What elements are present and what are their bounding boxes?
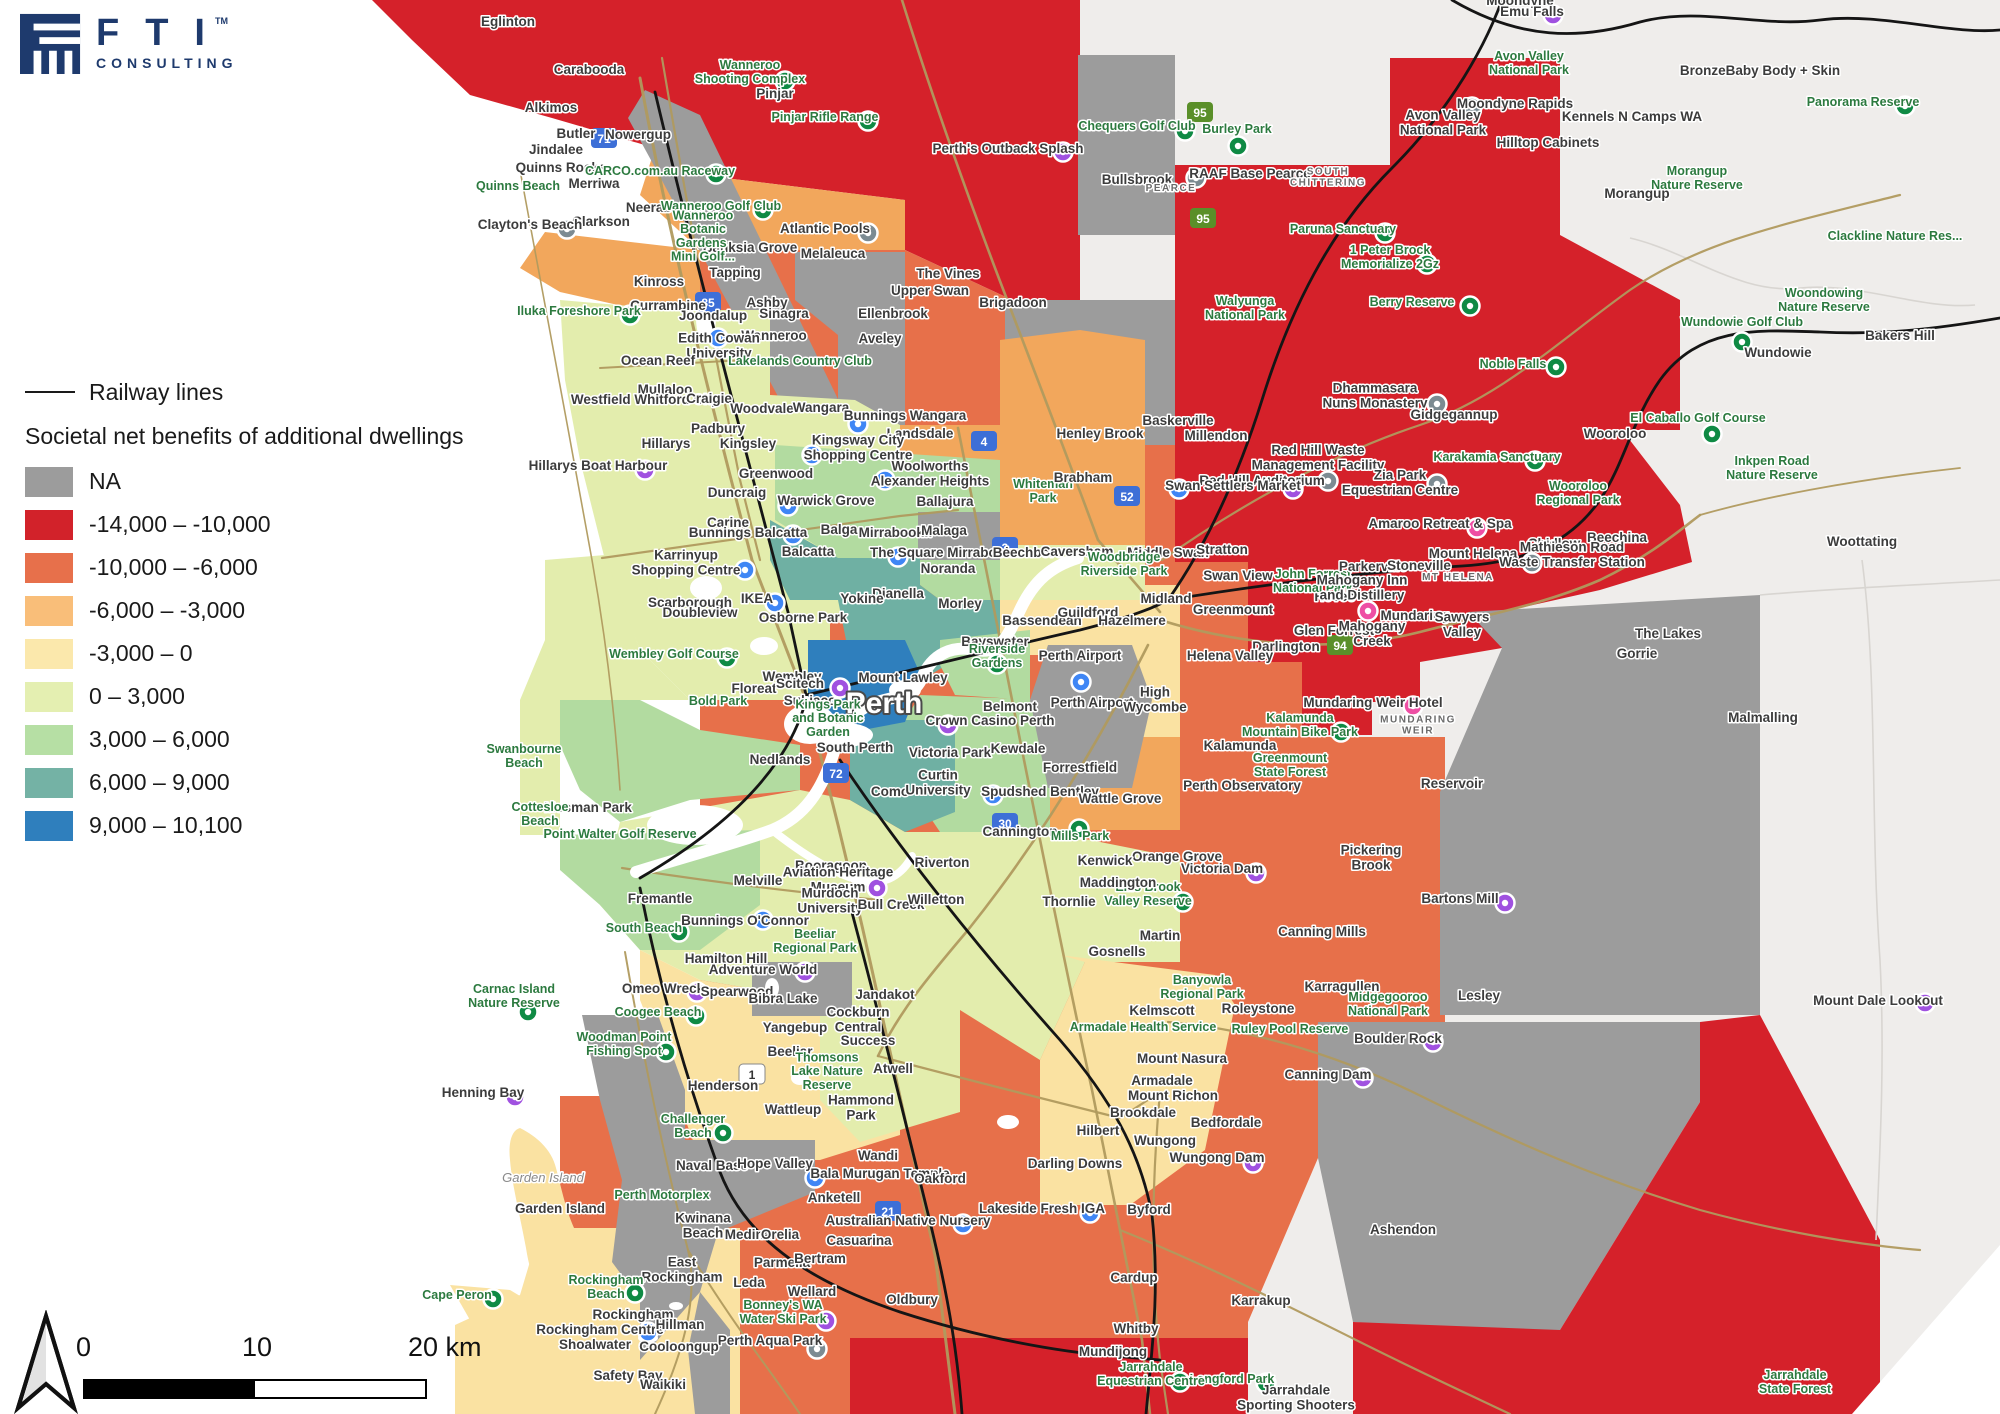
poi-marker-glyph bbox=[720, 1130, 726, 1136]
map-label: Noranda bbox=[921, 561, 976, 576]
map-label: PEARCE bbox=[1146, 183, 1197, 194]
map-label: Scitech bbox=[776, 676, 824, 691]
map-label: Bunnings Balcatta bbox=[689, 525, 808, 540]
map-label: Aveley bbox=[858, 331, 902, 346]
map-label: Amaroo Retreat & Spa bbox=[1368, 516, 1512, 531]
map-label: Hazelmere bbox=[1098, 613, 1166, 628]
map-label: Henderson bbox=[688, 1078, 759, 1093]
map-label: RiversideGardens bbox=[969, 642, 1025, 670]
map-label: Canning Mills bbox=[1278, 924, 1366, 939]
map-label: Wundowie Golf Club bbox=[1681, 315, 1803, 329]
map-label: Carabooda bbox=[554, 62, 625, 77]
map-label: Mahogany Innand Distillery bbox=[1317, 573, 1408, 603]
map-label: Hope Valley bbox=[737, 1156, 813, 1171]
map-label: GreenmountState Forest bbox=[1253, 751, 1328, 779]
map-label: Butler bbox=[556, 126, 596, 141]
region-na-avon-valley bbox=[1078, 55, 1175, 235]
road-shield-number: 94 bbox=[1333, 639, 1347, 653]
map-label: Kelmscott bbox=[1129, 1003, 1195, 1018]
map-label: Greenmount bbox=[1193, 602, 1274, 617]
poi-marker-glyph bbox=[1325, 478, 1331, 484]
poi-marker-glyph bbox=[1078, 679, 1084, 685]
map-label: WalyungaNational Park bbox=[1205, 294, 1285, 322]
map-label: Wangara bbox=[793, 400, 850, 415]
map-label: Cannington bbox=[983, 824, 1058, 839]
map-label: Joondalup bbox=[679, 308, 747, 323]
map-label: Perth Observatory bbox=[1183, 778, 1301, 793]
map-label: Jandakot bbox=[855, 987, 915, 1002]
map-label: Fremantle bbox=[628, 891, 693, 906]
logo-brand-text: FTI bbox=[96, 18, 231, 48]
map-label: Boulder Rock bbox=[1354, 1031, 1442, 1046]
map-label: Crown Casino Perth bbox=[925, 713, 1054, 728]
map-label: Pinjar bbox=[756, 86, 794, 101]
map-label: Melaleuca bbox=[801, 246, 866, 261]
legend-item: -10,000 – -6,000 bbox=[25, 546, 464, 589]
map-label: Warwick Grove bbox=[777, 493, 875, 508]
map-label: MurdochUniversity bbox=[797, 886, 863, 916]
lake bbox=[997, 1115, 1019, 1129]
legend-swatch bbox=[25, 725, 73, 755]
map-label: Henning Bay bbox=[442, 1085, 525, 1100]
road-shield-number: 72 bbox=[829, 767, 843, 781]
map-label: Victoria Park bbox=[909, 745, 992, 760]
map-label: Canning Dam bbox=[1284, 1067, 1371, 1082]
poi-marker-glyph bbox=[1502, 900, 1508, 906]
map-label: JarrahdaleState Forest bbox=[1759, 1368, 1832, 1396]
legend-swatch bbox=[25, 768, 73, 798]
scale-tick-10: 10 bbox=[242, 1332, 272, 1363]
map-label: Swan Settlers Market bbox=[1165, 478, 1301, 493]
map-label: Atwell bbox=[873, 1061, 913, 1076]
poi-marker-glyph bbox=[1553, 364, 1559, 370]
map-label: Martin bbox=[1140, 928, 1181, 943]
map-label: DhammasaraNuns Monastery bbox=[1322, 381, 1428, 411]
map-label: Duncraig bbox=[708, 485, 767, 500]
poi-marker-glyph bbox=[632, 1290, 638, 1296]
map-label: Malaga bbox=[921, 523, 967, 538]
map-label: Ocean Reef bbox=[621, 353, 696, 368]
map-label: Kinross bbox=[634, 274, 684, 289]
legend-label: 9,000 – 10,100 bbox=[89, 812, 242, 839]
map-label: WoodbridgeRiverside Park bbox=[1081, 550, 1168, 578]
map-label: Lakeside Fresh IGA bbox=[979, 1201, 1105, 1216]
map-label: El Caballo Golf Course bbox=[1630, 411, 1765, 425]
legend-item: -3,000 – 0 bbox=[25, 632, 464, 675]
map-label: Craigie bbox=[686, 391, 732, 406]
map-label: Coogee Beach bbox=[615, 1005, 702, 1019]
poi-marker-glyph bbox=[742, 567, 748, 573]
poi-marker-glyph bbox=[1365, 608, 1371, 614]
map-label: CARCO.com.au Raceway bbox=[585, 164, 735, 178]
map-label: Chequers Golf Club bbox=[1078, 119, 1196, 133]
map-label: Stratton bbox=[1196, 542, 1248, 557]
map-label: Moondyne Rapids bbox=[1457, 96, 1573, 111]
map-label: Mount Richon bbox=[1128, 1088, 1218, 1103]
railway-line-symbol bbox=[25, 391, 75, 393]
map-label: Quinns Beach bbox=[476, 179, 560, 193]
map-label: Leda bbox=[733, 1275, 765, 1290]
map-label: Mount Lawley bbox=[858, 670, 948, 685]
map-label: Perth Airport bbox=[1039, 648, 1122, 663]
map-label: Wandi bbox=[858, 1148, 898, 1163]
map-label: Brigadoon bbox=[979, 295, 1047, 310]
legend-item: 3,000 – 6,000 bbox=[25, 718, 464, 761]
map-label: Carnac IslandNature Reserve bbox=[468, 982, 560, 1010]
map-label: Mathieson RoadWaste Transfer Station bbox=[1499, 540, 1645, 570]
map-label: Shoalwater bbox=[559, 1337, 632, 1352]
map-label: Wellard bbox=[788, 1284, 837, 1299]
map-label: Wungong Dam bbox=[1170, 1150, 1265, 1165]
map-label: Anketell bbox=[808, 1190, 861, 1205]
map-label: Bartons Mill bbox=[1421, 891, 1498, 906]
map-label: Kennels N Camps WA bbox=[1562, 109, 1703, 124]
map-label: Mount Nasura bbox=[1137, 1051, 1227, 1066]
legend-label: NA bbox=[89, 468, 121, 495]
map-label: Berry Reserve bbox=[1370, 295, 1455, 309]
map-label: Atlantic Pools bbox=[780, 221, 870, 236]
map-label: Perth Motorplex bbox=[614, 1188, 709, 1202]
map-label: Midland bbox=[1141, 591, 1192, 606]
map-label: Thornlie bbox=[1042, 894, 1096, 909]
map-label: MT HELENA bbox=[1422, 572, 1494, 583]
map-label: Clayton's Beach bbox=[478, 217, 583, 232]
map-label: Victoria Dam bbox=[1181, 861, 1263, 876]
map-label: The Vines bbox=[916, 266, 980, 281]
railway-label: Railway lines bbox=[89, 379, 223, 406]
map-label: Inkpen RoadNature Reserve bbox=[1726, 454, 1818, 482]
map-label: Cape Peron bbox=[422, 1288, 491, 1302]
map-label: Upper Swan bbox=[891, 283, 969, 298]
map-label: BronzeBaby Body + Skin bbox=[1680, 63, 1840, 78]
road-shield-number: 4 bbox=[981, 435, 988, 449]
legend-item: NA bbox=[25, 460, 464, 503]
map-label: South Perth bbox=[817, 740, 894, 755]
legend-item: 6,000 – 9,000 bbox=[25, 761, 464, 804]
map-label: Wembley Golf Course bbox=[609, 647, 739, 661]
map-label: Byford bbox=[1127, 1202, 1171, 1217]
map-label: Iluka Foreshore Park bbox=[517, 304, 641, 318]
map-label: Orelia bbox=[761, 1227, 800, 1242]
fti-pillar-icon bbox=[20, 10, 82, 76]
map-label: Bonney's WAWater Ski Park bbox=[739, 1298, 826, 1326]
map-label: Forrestfield bbox=[1043, 760, 1117, 775]
map-label: Hillman bbox=[656, 1317, 705, 1332]
map-label: Avon ValleyNational Park bbox=[1400, 108, 1487, 138]
map-label: Brookdale bbox=[1110, 1105, 1177, 1120]
legend-label: -6,000 – -3,000 bbox=[89, 597, 245, 624]
map-label: Greenwood bbox=[739, 466, 813, 481]
map-label: Willetton bbox=[908, 892, 965, 907]
map-label: Bedfordale bbox=[1191, 1115, 1262, 1130]
map-label: Karakamia Sanctuary bbox=[1433, 450, 1560, 464]
map-label: Doubleview bbox=[662, 605, 738, 620]
map-label: Karrakup bbox=[1231, 1293, 1290, 1308]
map-label: Malmalling bbox=[1728, 710, 1798, 725]
map-label: Nedlands bbox=[750, 752, 811, 767]
scale-bar-rule bbox=[83, 1379, 427, 1399]
map-label: Hilltop Cabinets bbox=[1497, 135, 1600, 150]
map-label: Avon ValleyNational Park bbox=[1489, 49, 1569, 77]
map-label: Eglinton bbox=[481, 14, 535, 29]
legend-swatch bbox=[25, 467, 73, 497]
map-label: Merriwa bbox=[568, 176, 620, 191]
map-label: Garden Island bbox=[515, 1201, 605, 1216]
legend-label: 6,000 – 9,000 bbox=[89, 769, 230, 796]
legend-item: 0 – 3,000 bbox=[25, 675, 464, 718]
map-label: Wungong bbox=[1134, 1133, 1196, 1148]
map-legend: Railway lines Societal net benefits of a… bbox=[25, 375, 464, 847]
poi-marker-glyph bbox=[1235, 143, 1241, 149]
map-label: Emu Falls bbox=[1500, 4, 1564, 19]
map-label: Oldbury bbox=[886, 1292, 938, 1307]
map-label: Kingsley bbox=[720, 436, 777, 451]
legend-title: Societal net benefits of additional dwel… bbox=[25, 423, 464, 450]
map-label: Jindalee bbox=[529, 142, 584, 157]
map-label: Baskerville bbox=[1142, 413, 1214, 428]
map-label: Garden Island bbox=[502, 1170, 584, 1185]
map-label: Wooroloo bbox=[1584, 426, 1647, 441]
map-label: Cooloongup bbox=[639, 1339, 718, 1354]
map-label: The Lakes bbox=[1635, 626, 1701, 641]
map-label: Gosnells bbox=[1088, 944, 1145, 959]
poi-marker-glyph bbox=[1709, 431, 1715, 437]
map-label: Mount Dale Lookout bbox=[1813, 993, 1943, 1008]
map-label: Clackline Nature Res... bbox=[1828, 229, 1963, 243]
map-label: Wattleup bbox=[765, 1102, 822, 1117]
map-label: Nowergup bbox=[605, 127, 671, 142]
map-label: Stoneville bbox=[1387, 558, 1451, 573]
map-label: Lakelands Country Club bbox=[728, 354, 872, 368]
scale-tick-20: 20 km bbox=[408, 1332, 482, 1363]
map-label: Hillarys bbox=[642, 436, 691, 451]
map-label: Bunnings O'Connor bbox=[681, 913, 809, 928]
map-label: Woodvale bbox=[730, 401, 794, 416]
map-label: Ballajura bbox=[916, 494, 974, 509]
map-label: Omeo Wreck bbox=[622, 981, 705, 996]
map-label: WoondowingNature Reserve bbox=[1778, 286, 1870, 314]
poi-marker-glyph bbox=[874, 885, 880, 891]
legend-swatch bbox=[25, 639, 73, 669]
map-label: Padbury bbox=[691, 421, 746, 436]
lake bbox=[750, 637, 778, 655]
poi-marker-glyph bbox=[1467, 303, 1473, 309]
map-label: Reservoir bbox=[1421, 776, 1484, 791]
legend-label: -3,000 – 0 bbox=[89, 640, 193, 667]
legend-label: -10,000 – -6,000 bbox=[89, 554, 258, 581]
map-label: Mundaring Weir Hotel bbox=[1303, 695, 1442, 710]
map-label: Belmont bbox=[983, 699, 1038, 714]
map-label: Mundijong bbox=[1079, 1344, 1147, 1359]
map-label: Yokine bbox=[840, 591, 884, 606]
map-label: Bold Park bbox=[689, 694, 747, 708]
map-label: Morangup bbox=[1604, 186, 1669, 201]
scale-bar: 0 10 20 km bbox=[0, 1310, 520, 1414]
map-label: Gorrie bbox=[1617, 646, 1658, 661]
map-label: Brabham bbox=[1054, 470, 1113, 485]
legend-swatch bbox=[25, 811, 73, 841]
legend-label: 3,000 – 6,000 bbox=[89, 726, 230, 753]
legend-item: -14,000 – -10,000 bbox=[25, 503, 464, 546]
map-label: Ruley Pool Reserve bbox=[1232, 1022, 1349, 1036]
map-label: Armadale Health Service bbox=[1070, 1020, 1217, 1034]
road-shield-number: 95 bbox=[1193, 106, 1207, 120]
map-label: Panorama Reserve bbox=[1807, 95, 1920, 109]
map-label: Bertram bbox=[794, 1251, 846, 1266]
legend-swatch bbox=[25, 553, 73, 583]
map-label: Roleystone bbox=[1222, 1001, 1295, 1016]
map-label: Rockingham Centre bbox=[536, 1322, 664, 1337]
map-canvas[interactable]: 718595954352729430211EglintonCaraboodaPi… bbox=[0, 0, 2000, 1414]
map-label: Sinagra bbox=[759, 306, 809, 321]
map-label: Como bbox=[871, 784, 909, 799]
map-label: Paruna Sanctuary bbox=[1290, 222, 1396, 236]
map-label: Hilbert bbox=[1077, 1123, 1120, 1138]
legend-swatch bbox=[25, 510, 73, 540]
map-label: WannerooBotanicGardens Mini Golf... bbox=[671, 208, 735, 263]
legend-swatch bbox=[25, 682, 73, 712]
scale-tick-0: 0 bbox=[76, 1332, 91, 1363]
map-label: Balcatta bbox=[782, 544, 835, 559]
map-label: Wundowie bbox=[1744, 345, 1812, 360]
poi-marker-glyph bbox=[663, 1049, 669, 1055]
map-label: Whitby bbox=[1114, 1321, 1159, 1336]
map-label: Yangebup bbox=[763, 1020, 828, 1035]
map-label: Kenwick bbox=[1078, 853, 1133, 868]
map-label: Melville bbox=[734, 873, 783, 888]
map-label: Riverton bbox=[915, 855, 970, 870]
map-label: Woottating bbox=[1827, 534, 1897, 549]
legend-label: -14,000 – -10,000 bbox=[89, 511, 271, 538]
map-label: Maddington bbox=[1080, 875, 1156, 890]
legend-label: 0 – 3,000 bbox=[89, 683, 185, 710]
map-label: Bunnings Wangara bbox=[844, 408, 967, 423]
road-shield-number: 52 bbox=[1120, 490, 1134, 504]
map-label: Alkimos bbox=[525, 100, 578, 115]
map-label: Pinjar Rifle Range bbox=[772, 110, 879, 124]
map-label: Perth Aqua Park bbox=[718, 1333, 823, 1348]
fti-logo: FTI TM CONSULTING bbox=[20, 10, 238, 76]
map-label: Gidgegannup bbox=[1411, 407, 1498, 422]
map-label: Perth Airport bbox=[1051, 695, 1134, 710]
poi-marker-glyph bbox=[837, 685, 843, 691]
legend-item: 9,000 – 10,100 bbox=[25, 804, 464, 847]
map-label: Helena Valley bbox=[1187, 648, 1274, 663]
map-label: Success bbox=[841, 1033, 896, 1048]
map-label: Point Walter Golf Reserve bbox=[543, 827, 696, 841]
map-label: Armadale bbox=[1131, 1073, 1193, 1088]
map-label: Wattle Grove bbox=[1079, 791, 1162, 806]
legend-item: -6,000 – -3,000 bbox=[25, 589, 464, 632]
map-label: Burley Park bbox=[1202, 122, 1272, 136]
map-label: Noble Falls bbox=[1480, 357, 1547, 371]
map-label: Oakford bbox=[914, 1171, 966, 1186]
road-shield-number: 95 bbox=[1196, 212, 1210, 226]
map-label: KwinanaBeach bbox=[675, 1211, 731, 1241]
map-label: Adventure World bbox=[709, 962, 818, 977]
map-label: Perth's Outback Splash bbox=[932, 141, 1083, 156]
map-label: Ashendon bbox=[1370, 1222, 1436, 1237]
north-arrow-icon bbox=[14, 1310, 78, 1414]
logo-tm: TM bbox=[215, 16, 228, 26]
map-label: Darling Downs bbox=[1028, 1156, 1123, 1171]
map-label: Cardup bbox=[1110, 1270, 1157, 1285]
map-label: Kewdale bbox=[991, 741, 1046, 756]
map-label: IKEA bbox=[741, 591, 774, 606]
map-label: Mills Park bbox=[1051, 829, 1109, 843]
map-label: Ellenbrook bbox=[858, 306, 928, 321]
map-label: South Beach bbox=[606, 921, 682, 935]
legend-items: NA-14,000 – -10,000-10,000 – -6,000-6,00… bbox=[25, 460, 464, 847]
map-label: Swan View bbox=[1203, 568, 1273, 583]
map-label: Woodman PointFishing Spot bbox=[577, 1030, 673, 1058]
map-label: Hillarys Boat Harbour bbox=[529, 458, 669, 473]
map-label: Casuarina bbox=[826, 1233, 892, 1248]
map-label: Tapping bbox=[709, 265, 761, 280]
map-label: Waikiki bbox=[640, 1377, 686, 1392]
map-label: Osborne Park bbox=[759, 610, 848, 625]
legend-swatch bbox=[25, 596, 73, 626]
map-label: Morley bbox=[938, 596, 982, 611]
map-label: Balga bbox=[821, 522, 858, 537]
logo-subtitle: CONSULTING bbox=[96, 55, 238, 71]
legend-railway-row: Railway lines bbox=[25, 375, 464, 409]
map-label: Bakers Hill bbox=[1865, 328, 1935, 343]
map-label: MidgegoorooNational Park bbox=[1348, 990, 1428, 1018]
map-label: Lesley bbox=[1458, 988, 1501, 1003]
map-label: CockburnCentral bbox=[826, 1005, 889, 1035]
map-label: 1 Peter BrockMemorialize 2Gz bbox=[1341, 243, 1439, 271]
map-label: Bibra Lake bbox=[748, 991, 818, 1006]
map-label: Henley Brook bbox=[1056, 426, 1144, 441]
map-label: Australian Native Nursery bbox=[825, 1213, 991, 1228]
map-label: Millendon bbox=[1185, 428, 1248, 443]
